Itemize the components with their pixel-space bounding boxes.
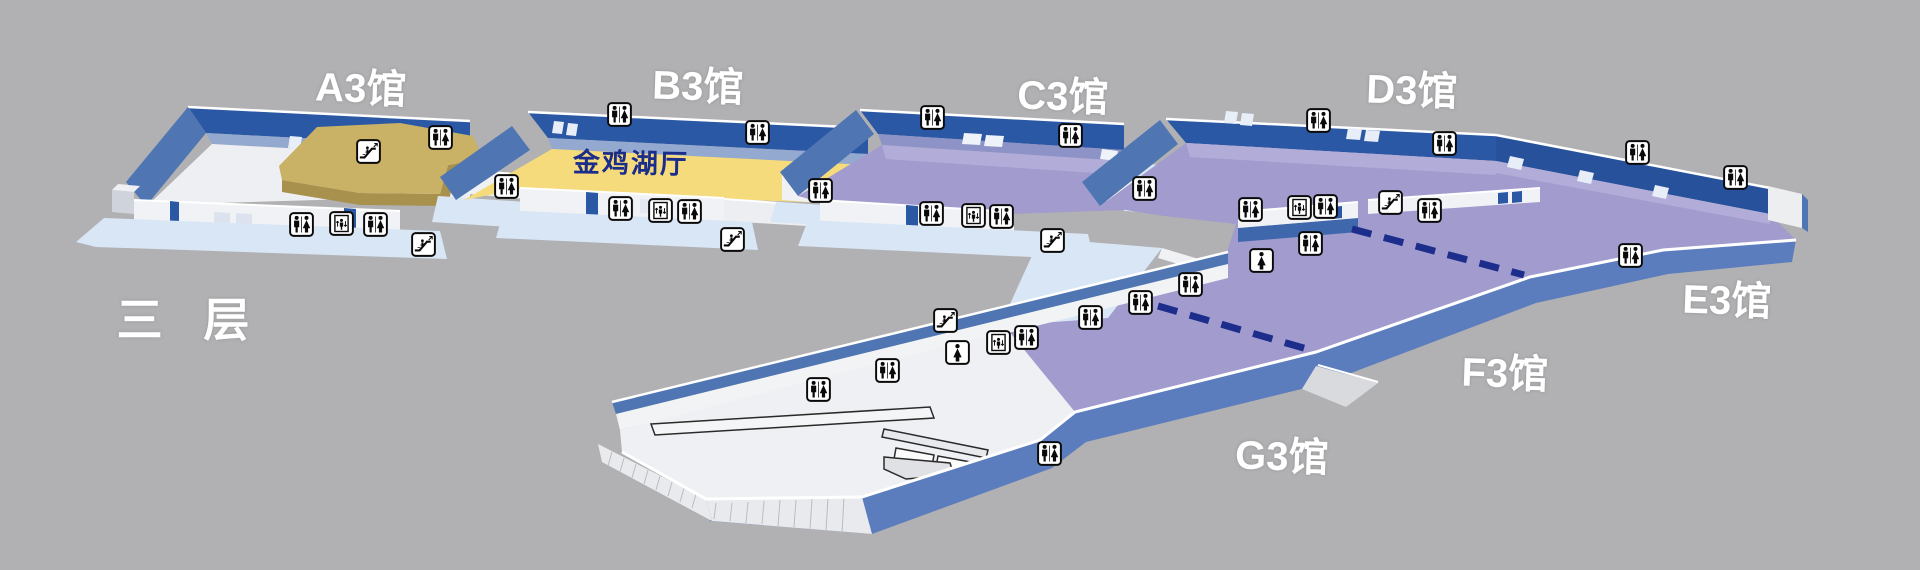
floor-map-drawing — [0, 0, 1920, 570]
hall-label-e3: E3馆 — [1682, 266, 1773, 327]
hall-label-b3: B3馆 — [651, 52, 744, 113]
hall-label-f3: F3馆 — [1461, 340, 1550, 401]
hall-label-d3: D3馆 — [1365, 56, 1458, 117]
expo-floor-map: A3馆 B3馆 C3馆 D3馆 E3馆 F3馆 G3馆 三 层 金鸡湖厅 — [0, 0, 1920, 570]
hall-label-g3: G3馆 — [1234, 422, 1329, 483]
hall-label-a3: A3馆 — [314, 54, 407, 115]
floor-level-label: 三 层 — [117, 284, 264, 350]
room-label-jinjihu: 金鸡湖厅 — [573, 140, 690, 181]
hall-label-c3: C3馆 — [1016, 62, 1109, 123]
hall-c3 — [780, 110, 1124, 260]
